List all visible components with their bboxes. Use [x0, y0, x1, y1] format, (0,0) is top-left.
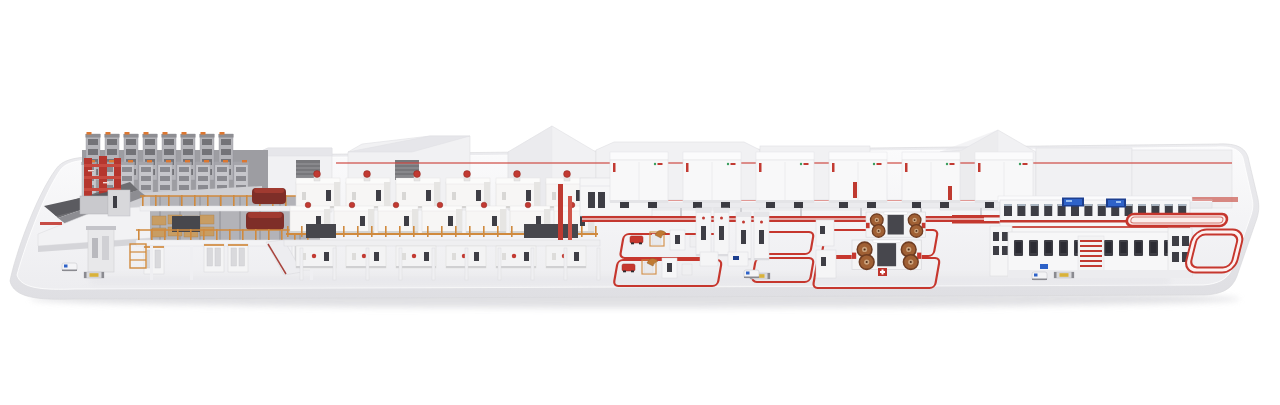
red-riser-pipe	[568, 196, 572, 240]
finishing-line	[990, 196, 1192, 278]
red-riser-pipe	[558, 184, 563, 240]
render-canvas	[0, 0, 1280, 405]
splicer-column	[88, 228, 114, 272]
production-line-render: 3D rendering of a complete turnkey indus…	[0, 0, 1280, 405]
